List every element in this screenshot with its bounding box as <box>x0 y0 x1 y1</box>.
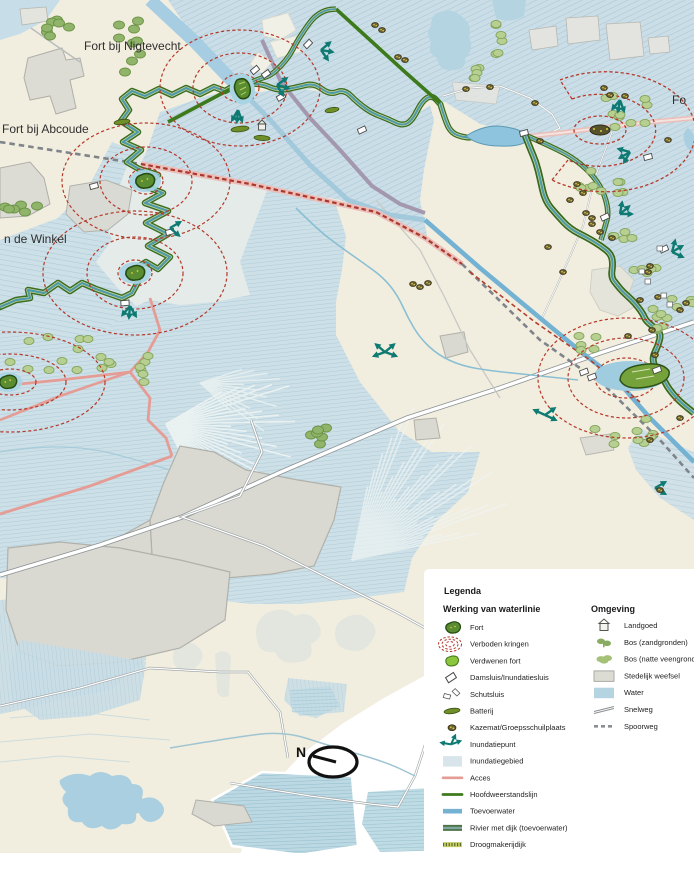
svg-text:N: N <box>296 744 306 760</box>
svg-text:Damsluis/Inundatiesluis: Damsluis/Inundatiesluis <box>470 673 549 682</box>
svg-text:n de Winkel: n de Winkel <box>4 232 67 246</box>
svg-text:Acces: Acces <box>470 773 491 782</box>
svg-text:Verdwenen fort: Verdwenen fort <box>470 656 521 665</box>
svg-text:Snelweg: Snelweg <box>624 705 653 714</box>
svg-text:Inundatiepunt: Inundatiepunt <box>470 740 516 749</box>
svg-text:Verboden kringen: Verboden kringen <box>470 640 529 649</box>
svg-text:Fo: Fo <box>672 93 686 107</box>
svg-text:Bos (zandgronden): Bos (zandgronden) <box>624 638 688 647</box>
svg-text:Spoorweg: Spoorweg <box>624 722 658 731</box>
svg-text:Droogmakerijdijk: Droogmakerijdijk <box>470 840 526 849</box>
svg-text:Rivier met dijk (toevoerwater): Rivier met dijk (toevoerwater) <box>470 823 568 832</box>
svg-text:Toevoerwater: Toevoerwater <box>470 807 516 816</box>
svg-text:Omgeving: Omgeving <box>591 604 635 614</box>
svg-text:Kazemat/Groepsschuilplaats: Kazemat/Groepsschuilplaats <box>470 723 566 732</box>
svg-text:Schutsluis: Schutsluis <box>470 690 504 699</box>
svg-text:Water: Water <box>624 688 644 697</box>
svg-text:Bos (natte veengronden): Bos (natte veengronden) <box>624 655 694 664</box>
svg-text:Batterij: Batterij <box>470 707 494 716</box>
svg-text:Fort bij Abcoude: Fort bij Abcoude <box>2 122 89 136</box>
svg-text:Fort: Fort <box>470 623 484 632</box>
svg-text:Werking van waterlinie: Werking van waterlinie <box>443 604 540 614</box>
svg-text:Stedelijk weefsel: Stedelijk weefsel <box>624 671 680 680</box>
svg-text:Fort bij Nigtevecht: Fort bij Nigtevecht <box>84 39 181 53</box>
svg-text:Inundatiegebied: Inundatiegebied <box>470 757 523 766</box>
svg-text:Hoofdweerstandslijn: Hoofdweerstandslijn <box>470 790 538 799</box>
svg-text:Legenda: Legenda <box>444 586 482 596</box>
svg-text:Landgoed: Landgoed <box>624 621 657 630</box>
